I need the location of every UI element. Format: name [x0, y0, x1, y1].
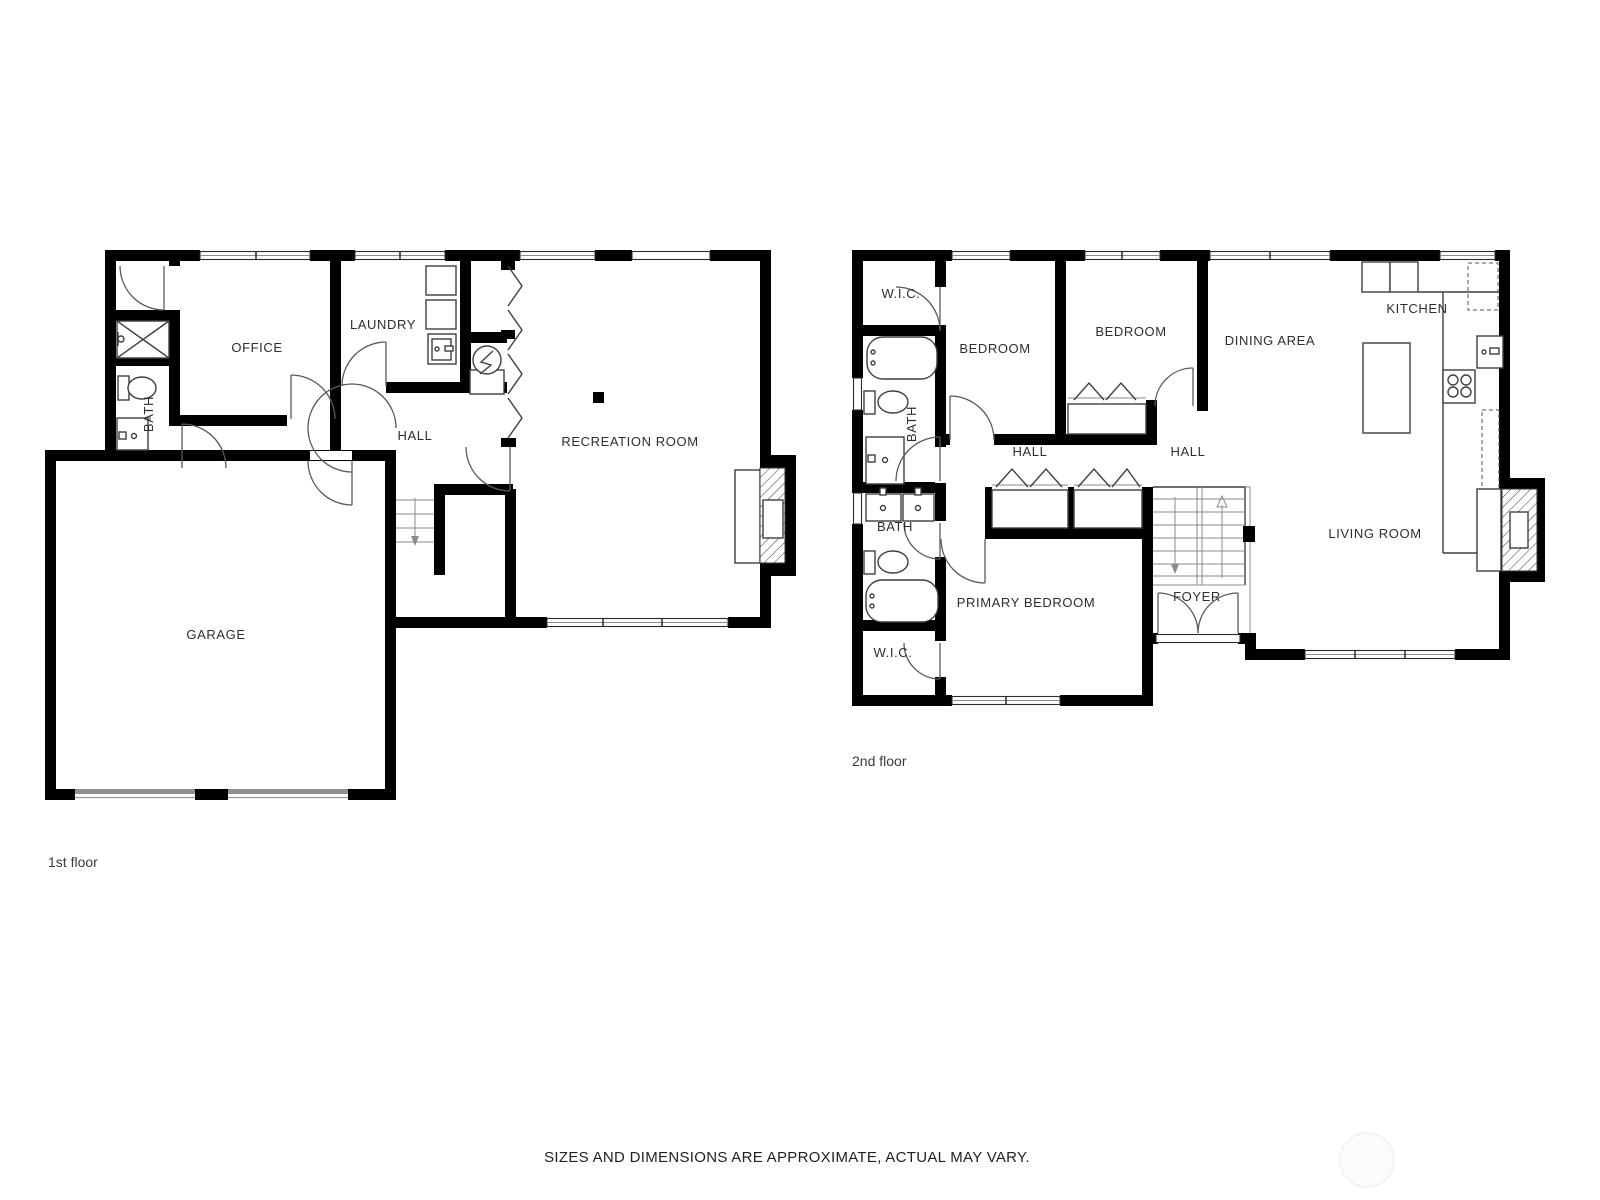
room-label-kitchen: KITCHEN: [1386, 301, 1447, 316]
shower-icon: [117, 321, 169, 358]
room-label-hall-right: HALL: [1171, 444, 1206, 459]
stairs-down: [396, 498, 434, 546]
room-label-bath1: BATH: [141, 396, 156, 432]
kitchen-sink-icon: [1477, 336, 1503, 368]
vanity-icon-upper: [866, 437, 904, 484]
room-label-laundry: LAUNDRY: [350, 317, 416, 332]
washer-dryer-icons: [426, 266, 456, 364]
room-label-primary: PRIMARY BEDROOM: [957, 595, 1096, 610]
support-post: [593, 392, 604, 403]
floor2-caption: 2nd floor: [852, 753, 907, 769]
room-label-hall-left: HALL: [1013, 444, 1048, 459]
room-label-bath-upper: BATH: [904, 406, 919, 442]
floor2-plan: W.I.C. BEDROOM BEDROOM KITCHEN DINING AR…: [852, 250, 1545, 769]
room-label-living: LIVING ROOM: [1328, 526, 1421, 541]
room-label-bedroom-left: BEDROOM: [959, 341, 1030, 356]
toilet-icon-lower: [864, 551, 908, 574]
floorplan-page: OFFICE LAUNDRY BATH HALL RECREATION ROOM…: [0, 0, 1600, 1200]
bathtub-icon-upper: [867, 337, 937, 379]
watermark-circle: [1340, 1133, 1394, 1187]
room-label-recreation: RECREATION ROOM: [561, 434, 698, 449]
disclaimer-text: SIZES AND DIMENSIONS ARE APPROXIMATE, AC…: [544, 1149, 1030, 1166]
stove-icon: [1443, 370, 1475, 403]
hall-closets: [992, 469, 1142, 528]
floor1-plan: OFFICE LAUNDRY BATH HALL RECREATION ROOM…: [45, 250, 796, 870]
room-label-dining: DINING AREA: [1225, 333, 1315, 348]
room-label-office: OFFICE: [231, 340, 282, 355]
room-label-wic-top: W.I.C.: [882, 286, 921, 301]
room-label-bedroom-right: BEDROOM: [1095, 324, 1166, 339]
fireplace-icon-2: [1477, 489, 1537, 571]
toilet-icon-upper: [864, 391, 908, 414]
room-label-wic-bottom: W.I.C.: [874, 645, 913, 660]
water-heater-icon: [470, 346, 504, 394]
floorplan-canvas: OFFICE LAUNDRY BATH HALL RECREATION ROOM…: [0, 0, 1600, 1200]
room-label-foyer: FOYER: [1173, 589, 1221, 604]
folding-door-zigzag: [508, 266, 522, 438]
fireplace-icon: [735, 468, 785, 563]
floor1-door-openings: [169, 266, 352, 460]
room-label-garage: GARAGE: [186, 627, 245, 642]
room-label-bath-lower: BATH: [877, 519, 913, 534]
bedroom2-closet: [1068, 383, 1146, 434]
room-label-hall1: HALL: [398, 428, 433, 443]
bathtub-icon-lower: [866, 580, 938, 622]
floor1-caption: 1st floor: [48, 854, 98, 870]
